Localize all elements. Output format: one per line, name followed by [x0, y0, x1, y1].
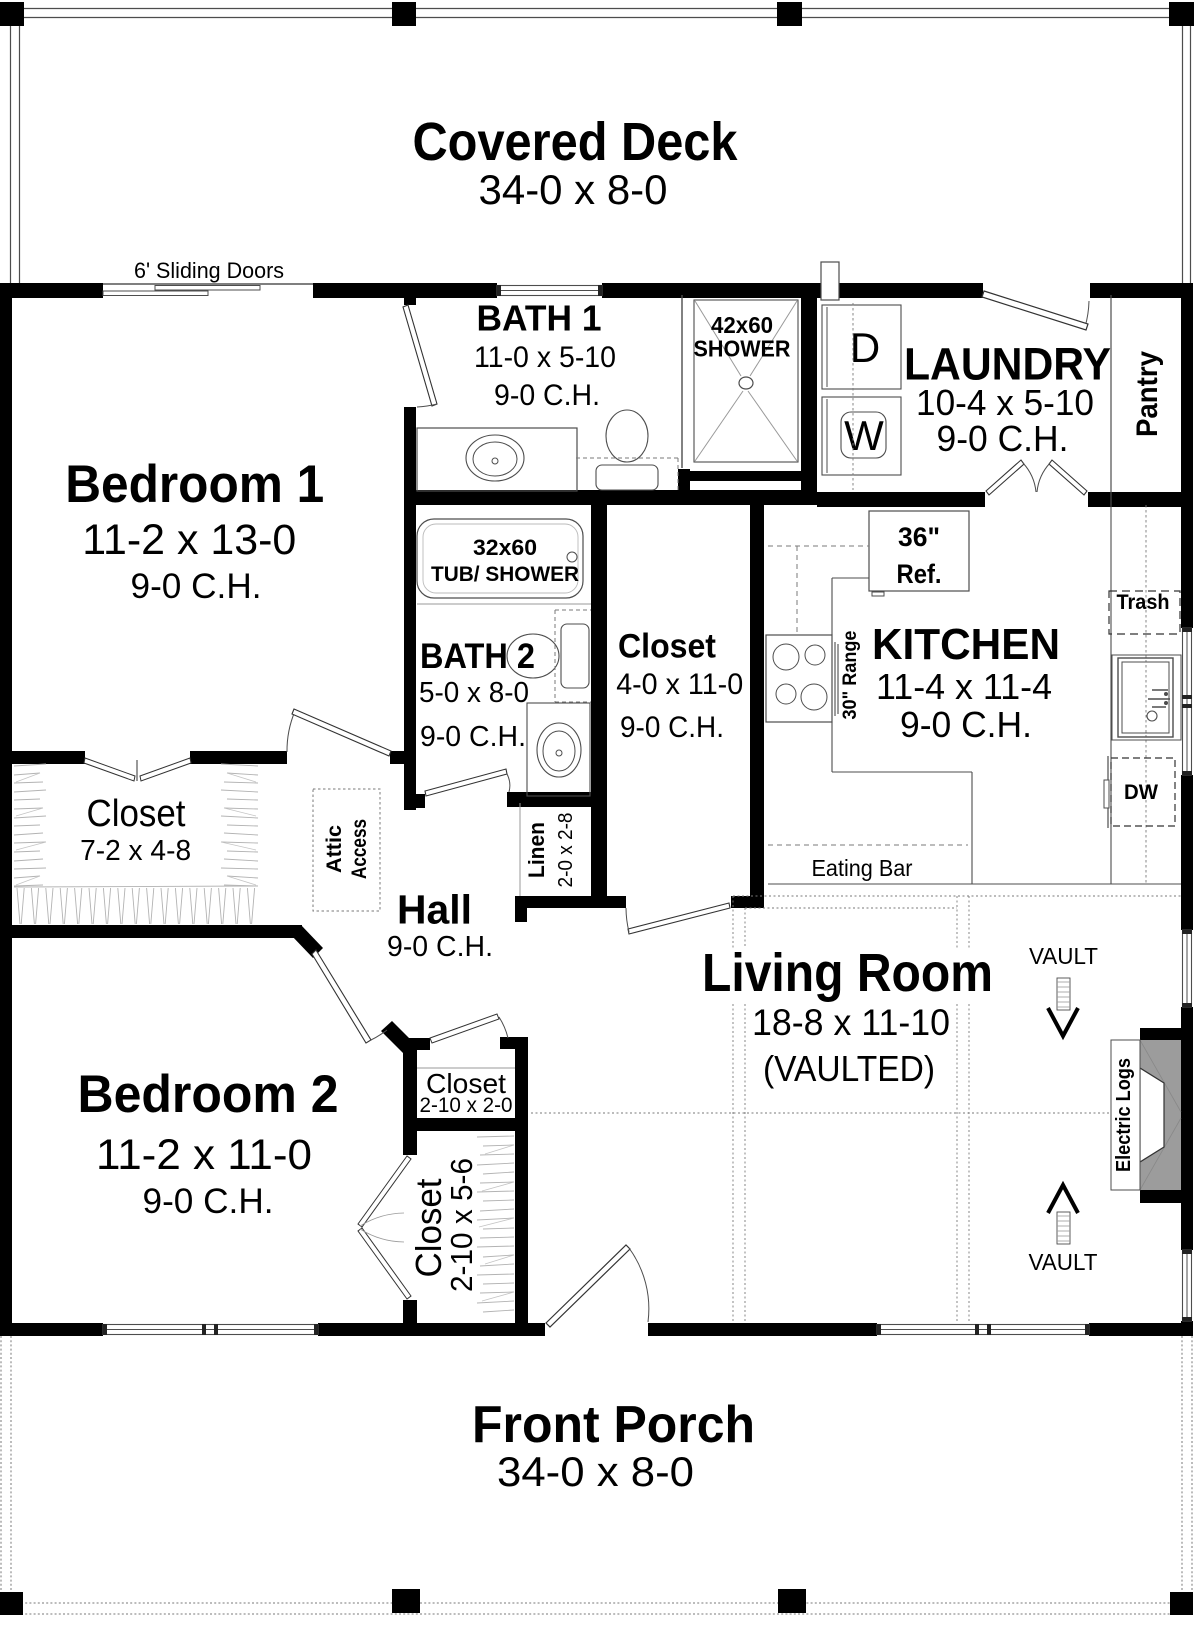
svg-text:BATH 2: BATH 2	[420, 637, 535, 676]
svg-text:W: W	[844, 412, 884, 459]
svg-text:5-0 x 8-0: 5-0 x 8-0	[419, 677, 529, 709]
svg-text:9-0 C.H.: 9-0 C.H.	[420, 721, 526, 753]
svg-text:Closet: Closet	[87, 793, 186, 835]
svg-text:SHOWER: SHOWER	[694, 336, 791, 362]
svg-text:BATH 1: BATH 1	[477, 298, 602, 339]
svg-text:Attic: Attic	[323, 825, 346, 873]
svg-text:Living Room: Living Room	[702, 943, 993, 1003]
svg-text:TUB/ SHOWER: TUB/ SHOWER	[431, 563, 579, 586]
svg-text:(VAULTED): (VAULTED)	[763, 1048, 935, 1089]
svg-text:9-0 C.H.: 9-0 C.H.	[900, 704, 1032, 745]
svg-text:2-10 x 5-6: 2-10 x 5-6	[444, 1158, 479, 1292]
svg-text:7-2 x 4-8: 7-2 x 4-8	[80, 835, 191, 867]
svg-text:Access: Access	[348, 819, 371, 879]
svg-text:Eating Bar: Eating Bar	[812, 855, 913, 881]
svg-text:VAULT: VAULT	[1029, 943, 1098, 969]
svg-text:42x60: 42x60	[711, 312, 773, 338]
svg-text:DW: DW	[1124, 781, 1158, 804]
svg-text:2-10 x 2-0: 2-10 x 2-0	[420, 1094, 513, 1117]
svg-text:9-0 C.H.: 9-0 C.H.	[143, 1182, 274, 1221]
svg-text:Closet: Closet	[408, 1179, 449, 1278]
svg-text:D: D	[850, 324, 880, 371]
svg-text:34-0 x 8-0: 34-0 x 8-0	[479, 166, 668, 213]
svg-text:VAULT: VAULT	[1029, 1249, 1098, 1275]
svg-text:9-0 C.H.: 9-0 C.H.	[937, 418, 1069, 459]
svg-text:Electric Logs: Electric Logs	[1113, 1058, 1135, 1172]
svg-text:Covered Deck: Covered Deck	[413, 112, 739, 172]
svg-text:Bedroom 2: Bedroom 2	[78, 1065, 339, 1124]
svg-text:36": 36"	[898, 522, 940, 552]
svg-text:Closet: Closet	[618, 628, 716, 666]
svg-text:11-2 x 13-0: 11-2 x 13-0	[82, 516, 296, 564]
svg-text:Pantry: Pantry	[1131, 351, 1164, 437]
svg-text:2-0 x 2-8: 2-0 x 2-8	[555, 813, 577, 888]
svg-text:9-0 C.H.: 9-0 C.H.	[620, 711, 724, 744]
svg-text:10-4 x 5-10: 10-4 x 5-10	[916, 382, 1094, 423]
svg-text:11-4 x 11-4: 11-4 x 11-4	[876, 666, 1052, 707]
svg-text:11-0 x 5-10: 11-0 x 5-10	[474, 341, 616, 374]
svg-text:KITCHEN: KITCHEN	[872, 620, 1060, 669]
svg-text:30" Range: 30" Range	[840, 631, 861, 720]
svg-text:18-8 x 11-10: 18-8 x 11-10	[752, 1002, 950, 1043]
svg-text:Linen: Linen	[524, 822, 549, 878]
svg-text:9-0 C.H.: 9-0 C.H.	[387, 931, 493, 963]
svg-text:9-0 C.H.: 9-0 C.H.	[494, 379, 600, 412]
svg-text:9-0 C.H.: 9-0 C.H.	[131, 567, 262, 606]
svg-text:4-0 x 11-0: 4-0 x 11-0	[616, 668, 743, 701]
svg-text:6' Sliding Doors: 6' Sliding Doors	[134, 258, 284, 283]
svg-text:11-2 x 11-0: 11-2 x 11-0	[96, 1131, 312, 1179]
svg-text:32x60: 32x60	[473, 535, 537, 560]
svg-text:Bedroom 1: Bedroom 1	[65, 455, 324, 514]
svg-text:Trash: Trash	[1117, 591, 1170, 614]
svg-text:34-0 x 8-0: 34-0 x 8-0	[497, 1448, 694, 1495]
svg-text:Hall: Hall	[397, 887, 472, 933]
svg-text:Ref.: Ref.	[897, 559, 942, 589]
svg-text:Front Porch: Front Porch	[472, 1396, 755, 1454]
